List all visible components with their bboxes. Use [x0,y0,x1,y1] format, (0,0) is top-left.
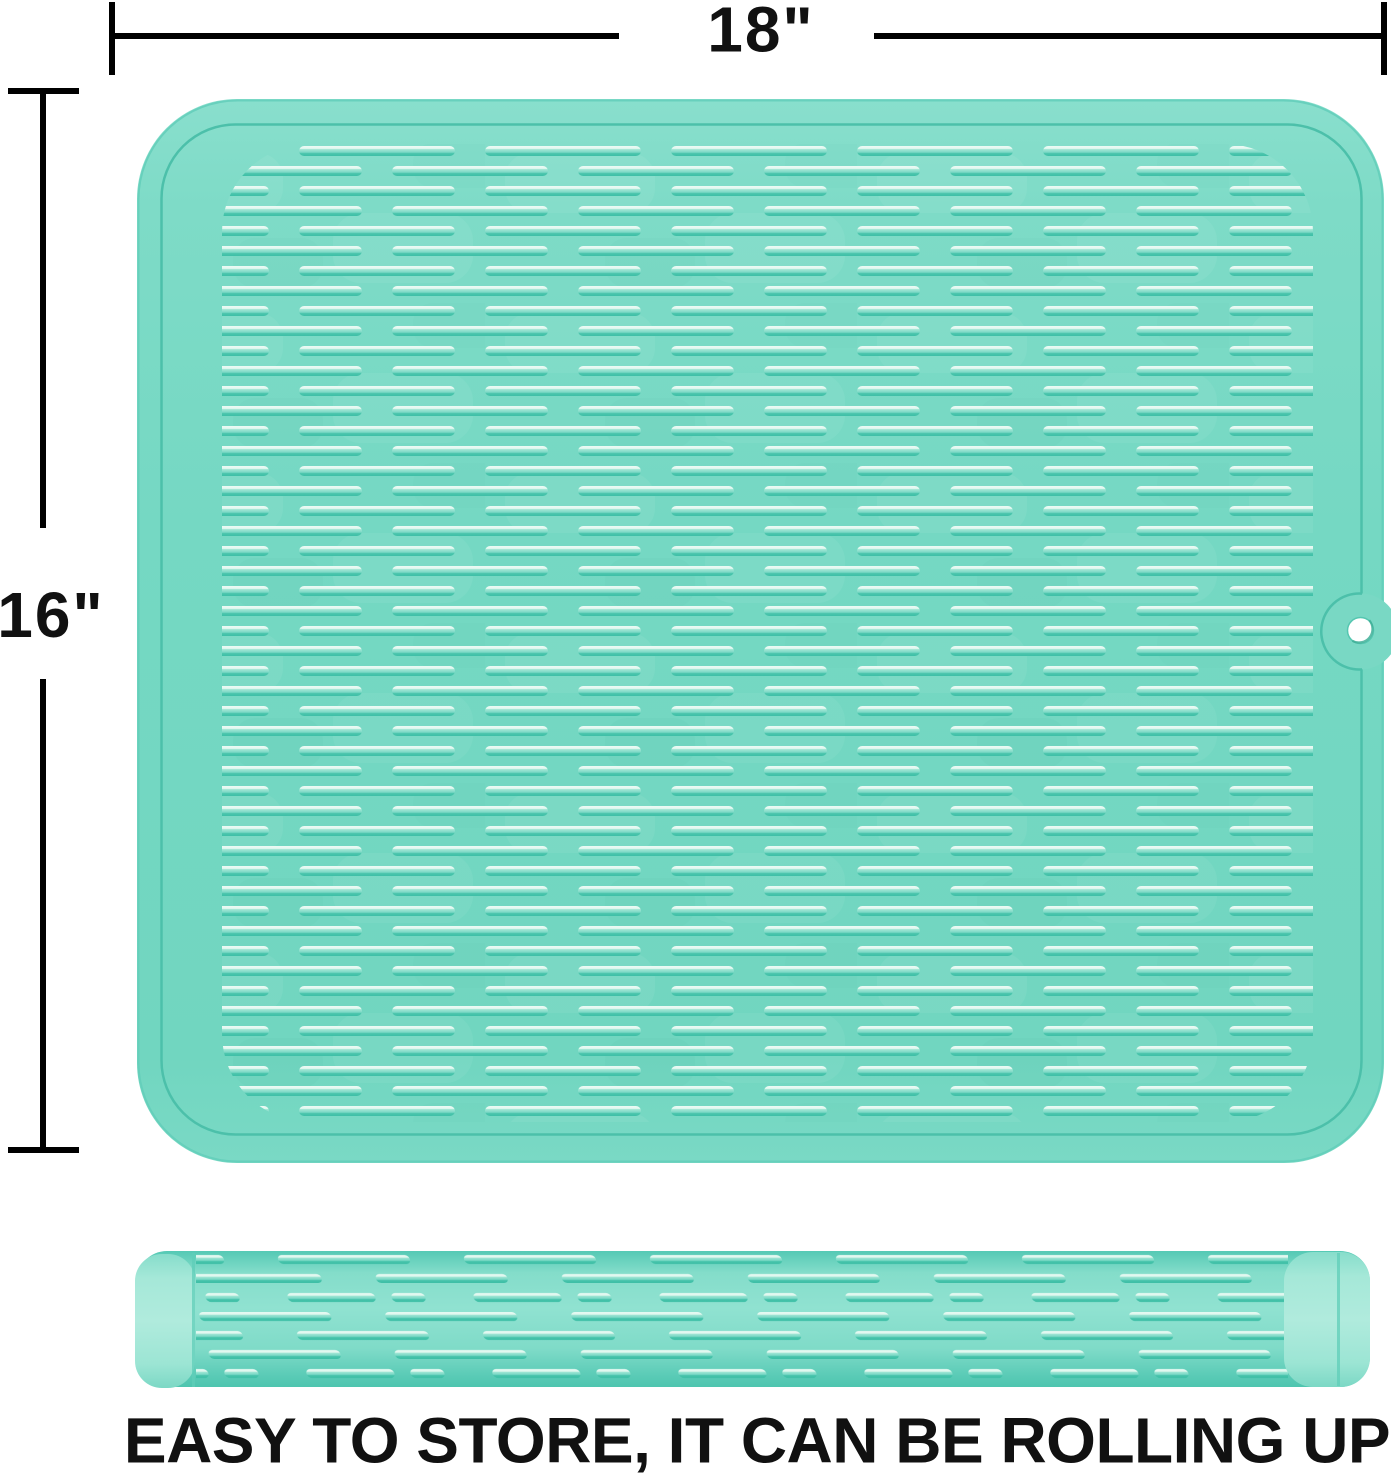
svg-text:16": 16" [0,579,105,651]
svg-text:18": 18" [707,0,815,66]
svg-text:EASY TO STORE, IT CAN BE ROLLI: EASY TO STORE, IT CAN BE ROLLING UP [124,1405,1390,1477]
